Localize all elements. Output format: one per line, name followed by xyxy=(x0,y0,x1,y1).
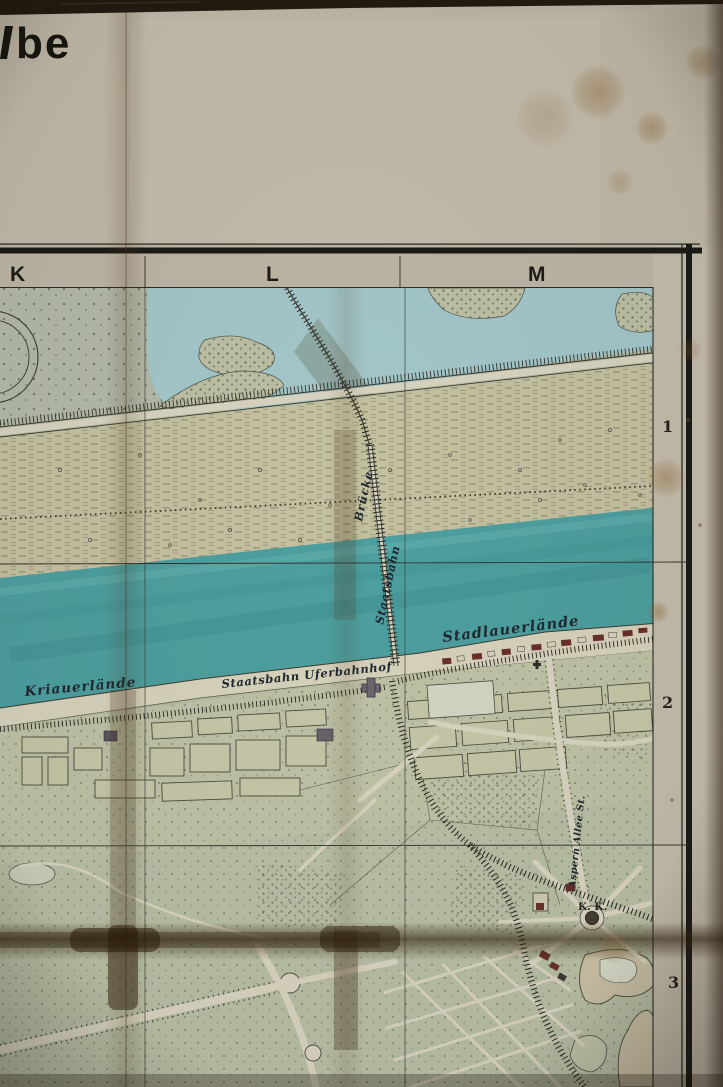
map-photo: Kriauerlände Stadlauerlände Staatsbahn U… xyxy=(0,0,723,1087)
antique-city-map: Kriauerlände Stadlauerlände Staatsbahn U… xyxy=(0,0,723,1087)
photo-vignette xyxy=(0,0,723,1087)
